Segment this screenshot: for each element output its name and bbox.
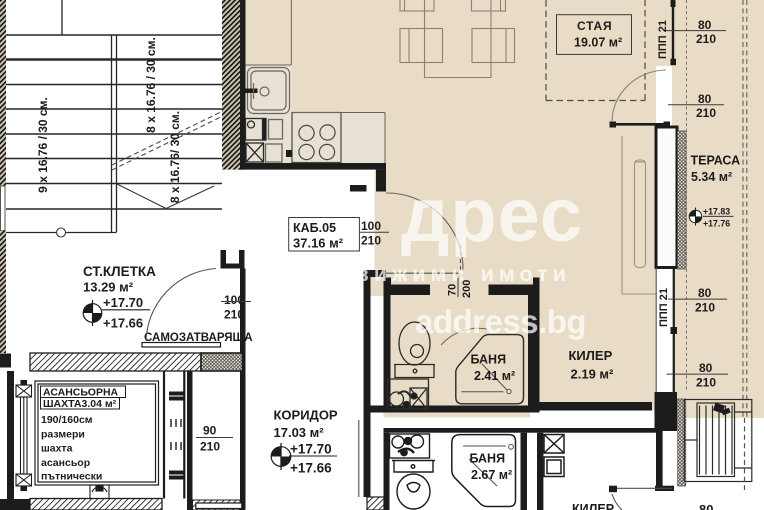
svg-text:2.19 м²: 2.19 м² bbox=[571, 367, 615, 382]
svg-text:КИЛЕР: КИЛЕР bbox=[569, 348, 613, 363]
svg-text:+17.70: +17.70 bbox=[103, 295, 143, 310]
svg-text:пътнически: пътнически bbox=[41, 471, 102, 483]
svg-text:90: 90 bbox=[203, 424, 217, 438]
svg-text:17.03 м²: 17.03 м² bbox=[274, 425, 325, 440]
svg-text:100: 100 bbox=[224, 293, 244, 307]
svg-text:дрес: дрес bbox=[401, 173, 583, 258]
svg-text:80: 80 bbox=[698, 18, 712, 32]
svg-text:190/160см: 190/160см bbox=[41, 414, 93, 426]
svg-text:БАНЯ: БАНЯ bbox=[471, 353, 507, 367]
svg-text:210: 210 bbox=[696, 32, 716, 46]
svg-text:БАНЯ: БАНЯ bbox=[470, 452, 506, 466]
svg-text:+17.66: +17.66 bbox=[103, 316, 143, 331]
svg-text:шахта: шахта bbox=[41, 443, 73, 455]
svg-text:210: 210 bbox=[696, 106, 716, 120]
svg-text:ППП 21: ППП 21 bbox=[657, 20, 669, 59]
svg-text:9 x 16.76 / 30 см.: 9 x 16.76 / 30 см. bbox=[36, 97, 50, 193]
svg-text:асансьор: асансьор bbox=[41, 457, 90, 469]
svg-text:+17.66: +17.66 bbox=[290, 461, 332, 476]
svg-text:+17.83: +17.83 bbox=[703, 207, 730, 217]
svg-text:КОРИДОР: КОРИДОР bbox=[274, 408, 338, 423]
svg-text:8 x 16.76 / 30 см.: 8 x 16.76 / 30 см. bbox=[144, 37, 158, 133]
svg-text:210: 210 bbox=[200, 440, 220, 454]
svg-text:13.29 м²: 13.29 м² bbox=[83, 280, 134, 295]
svg-text:80: 80 bbox=[699, 361, 713, 375]
svg-text:АСАНСЬОРНА: АСАНСЬОРНА bbox=[43, 387, 119, 399]
svg-text:100: 100 bbox=[361, 219, 381, 233]
svg-text:ППП 21: ППП 21 bbox=[658, 288, 670, 327]
svg-text:ШАХТА3.04 м²: ШАХТА3.04 м² bbox=[43, 398, 117, 410]
svg-text:address.bg: address.bg bbox=[415, 303, 586, 340]
svg-text:210: 210 bbox=[361, 234, 381, 248]
svg-text:движими имоти: движими имоти bbox=[337, 262, 571, 286]
svg-text:+17.76: +17.76 bbox=[703, 219, 730, 229]
svg-text:80: 80 bbox=[698, 92, 712, 106]
svg-text:210: 210 bbox=[224, 308, 244, 322]
svg-text:КИЛЕР: КИЛЕР bbox=[572, 502, 614, 510]
svg-text:19.07 м²: 19.07 м² bbox=[574, 36, 622, 50]
svg-text:+17.70: +17.70 bbox=[290, 442, 332, 457]
svg-text:8 x 16.76/ 30 см.: 8 x 16.76/ 30 см. bbox=[168, 111, 182, 203]
svg-text:2.41 м²: 2.41 м² bbox=[474, 369, 515, 383]
svg-text:СТАЯ: СТАЯ bbox=[577, 19, 612, 33]
svg-text:37.16 м²: 37.16 м² bbox=[293, 236, 344, 251]
svg-text:80: 80 bbox=[699, 502, 713, 510]
svg-text:80: 80 bbox=[698, 286, 712, 300]
svg-text:2.67 м²: 2.67 м² bbox=[471, 468, 512, 482]
svg-text:210: 210 bbox=[696, 376, 716, 390]
svg-text:210: 210 bbox=[695, 301, 715, 315]
svg-text:размери: размери bbox=[41, 429, 85, 441]
svg-text:ТЕРАСА: ТЕРАСА bbox=[691, 154, 741, 168]
svg-text:СТ.КЛЕТКА: СТ.КЛЕТКА bbox=[83, 264, 156, 279]
svg-text:КАБ.05: КАБ.05 bbox=[293, 221, 336, 235]
svg-text:5.34 м²: 5.34 м² bbox=[691, 170, 732, 184]
